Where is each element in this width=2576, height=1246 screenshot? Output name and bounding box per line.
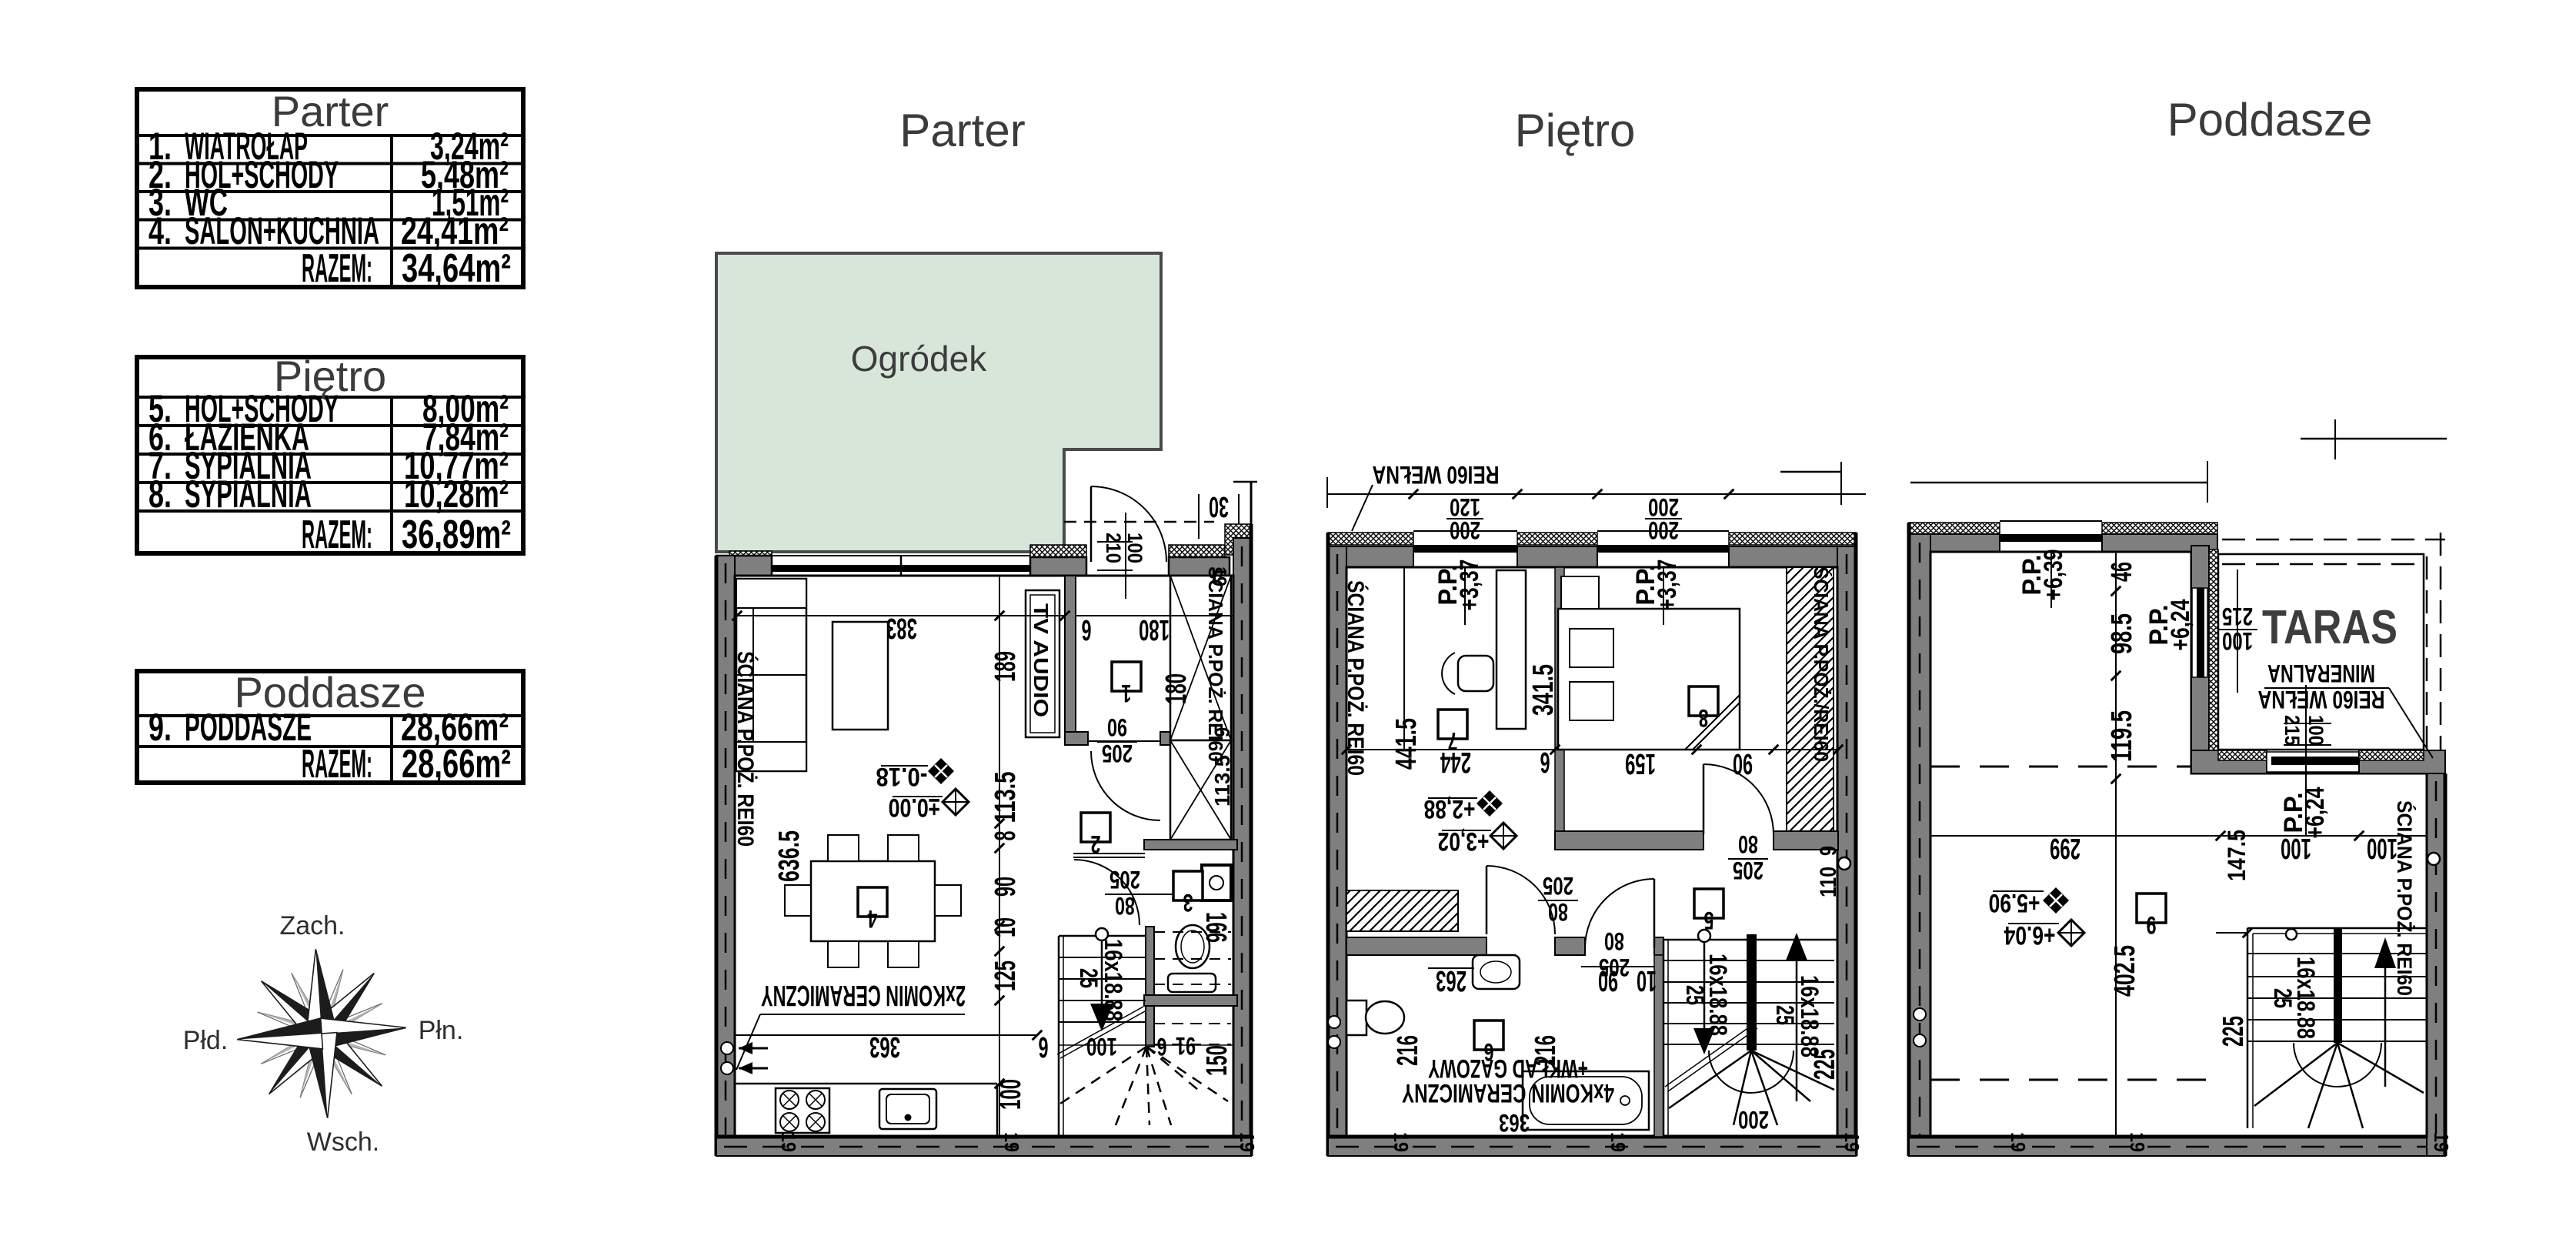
svg-text:34,64m²: 34,64m² [402,246,511,291]
svg-text:2: 2 [1091,830,1101,858]
svg-text:19: 19 [2430,1132,2453,1152]
svg-text:Zach.: Zach. [279,911,345,940]
svg-text:263: 263 [1436,964,1467,997]
svg-text:RAZEM:: RAZEM: [302,742,372,787]
svg-text:TV AUDIO: TV AUDIO [1029,603,1053,717]
svg-text:402.5: 402.5 [2109,945,2141,997]
svg-text:ŚCIANA P.POŻ. REI60: ŚCIANA P.POŻ. REI60 [2393,800,2417,996]
svg-text:1: 1 [1122,680,1132,707]
svg-text:6: 6 [1082,613,1092,646]
svg-text:100: 100 [1086,1033,1117,1061]
svg-text:RAZEM:: RAZEM: [302,513,372,557]
svg-text:216: 216 [1392,1035,1424,1066]
svg-text:Piętro: Piętro [1515,105,1636,156]
svg-text:100: 100 [1123,533,1146,563]
svg-text:80: 80 [1604,927,1624,955]
svg-text:636.5: 636.5 [773,830,806,882]
svg-text:90: 90 [1107,713,1127,741]
svg-text:159: 159 [1625,747,1656,780]
svg-text:6: 6 [1039,1031,1049,1063]
svg-text:9: 9 [1210,727,1234,737]
svg-text:244: 244 [1440,746,1471,778]
svg-text:SYPIALNIA: SYPIALNIA [185,473,312,516]
svg-text:19: 19 [1607,1132,1630,1152]
svg-text:10: 10 [1637,964,1657,997]
svg-text:10,28m²: 10,28m² [404,473,509,516]
svg-text:8.: 8. [148,473,172,516]
svg-text:363: 363 [1499,1109,1530,1137]
svg-text:225: 225 [1809,1049,1841,1080]
svg-text:Wsch.: Wsch. [307,1127,379,1157]
svg-text:341.5: 341.5 [1527,664,1560,716]
svg-text:46: 46 [2106,562,2138,582]
svg-text:ŚCIANA P.POŻ. REI60: ŚCIANA P.POŻ. REI60 [1343,580,1369,776]
svg-text:147.5: 147.5 [2223,830,2251,881]
svg-text:210: 210 [1102,533,1125,563]
svg-text:6: 6 [1540,746,1550,778]
svg-text:125: 125 [989,960,1022,991]
svg-text:19: 19 [1208,566,1231,586]
svg-text:180: 180 [1160,673,1193,704]
svg-text:Ogródek: Ogródek [851,339,987,379]
svg-text:19: 19 [1236,1132,1259,1152]
svg-text:8: 8 [1699,704,1709,732]
svg-text:25: 25 [1771,1005,1799,1025]
svg-text:215: 215 [2281,715,2304,746]
svg-text:90: 90 [1598,964,1618,997]
svg-text:100: 100 [2304,715,2327,746]
svg-text:16x18.88: 16x18.88 [1099,939,1127,1021]
svg-text:25: 25 [1681,985,1709,1005]
svg-text:2xKOMIN CERAMICZNY: 2xKOMIN CERAMICZNY [761,979,966,1011]
svg-text:9: 9 [2147,911,2157,939]
svg-text:180: 180 [1139,613,1170,646]
svg-text:225: 225 [2217,1016,2250,1047]
svg-text:98.5: 98.5 [2106,613,2138,654]
svg-text:36,89m²: 36,89m² [402,513,511,557]
svg-text:205: 205 [1102,740,1133,767]
svg-text:ŚCIANA P.POŻ./REI60: ŚCIANA P.POŻ./REI60 [1810,566,1833,762]
svg-text:REI60 WEŁNA: REI60 WEŁNA [1373,461,1500,489]
svg-text:19: 19 [1000,1132,1023,1152]
svg-text:+3,37: +3,37 [1653,560,1682,611]
svg-text:MINERALNA: MINERALNA [2267,660,2375,687]
svg-text:100: 100 [2367,832,2397,864]
svg-text:PODDASZE: PODDASZE [185,706,312,749]
svg-text:166: 166 [1200,912,1232,943]
svg-text:200: 200 [1738,1106,1769,1134]
svg-text:205: 205 [1543,872,1573,900]
svg-text:383: 383 [886,612,917,644]
svg-text:25: 25 [1075,968,1103,988]
svg-text:205: 205 [1733,857,1763,884]
svg-text:113.5: 113.5 [1210,755,1234,807]
svg-text:+6,24: +6,24 [2166,599,2195,650]
svg-text:REI60 WEŁNA: REI60 WEŁNA [2258,686,2385,713]
svg-text:441.5: 441.5 [1390,718,1423,770]
svg-text:205: 205 [1109,866,1140,894]
svg-text:113.5: 113.5 [989,772,1022,823]
svg-text:+3,37: +3,37 [1455,560,1484,611]
svg-text:+6.04: +6.04 [2004,920,2055,950]
svg-text:80: 80 [1548,898,1568,926]
svg-text:25: 25 [2269,988,2297,1008]
svg-text:Płd.: Płd. [183,1026,229,1055]
svg-text:90: 90 [1733,747,1753,780]
svg-text:119.5: 119.5 [2106,710,2138,762]
svg-text:19: 19 [2126,1132,2149,1152]
svg-text:6: 6 [1157,1033,1167,1061]
svg-text:80: 80 [1738,830,1758,858]
svg-text:19: 19 [1840,1132,1864,1152]
svg-text:28,66m²: 28,66m² [402,742,511,787]
svg-text:30: 30 [1209,490,1229,523]
svg-text:299: 299 [2050,832,2080,864]
svg-text:ŚCIANA P.POŻ. REI60: ŚCIANA P.POŻ. REI60 [732,651,759,847]
svg-text:100: 100 [995,1079,1027,1110]
svg-text:9.: 9. [148,706,172,749]
svg-text:9: 9 [1816,846,1841,856]
svg-text:+6,24: +6,24 [2301,787,2330,838]
svg-text:19: 19 [2007,1132,2030,1152]
svg-text:110: 110 [1816,867,1841,897]
svg-text:4.: 4. [148,209,172,252]
svg-text:363: 363 [869,1031,900,1063]
svg-text:19: 19 [777,1132,800,1152]
svg-text:4xKOMIN CERAMICZNY: 4xKOMIN CERAMICZNY [1402,1078,1614,1107]
svg-text:150: 150 [1201,1045,1233,1076]
svg-text:Parter: Parter [899,105,1025,156]
svg-text:TARAS: TARAS [2262,601,2397,654]
svg-text:90: 90 [989,877,1022,897]
svg-text:RAZEM:: RAZEM: [302,246,372,291]
svg-text:+6,39: +6,39 [2039,550,2068,601]
svg-text:Poddasze: Poddasze [2167,94,2373,145]
svg-text:16x18.88: 16x18.88 [1796,975,1824,1057]
svg-text:8: 8 [989,831,1022,841]
svg-text:+5.90: +5.90 [1989,888,2040,917]
svg-text:Płn.: Płn. [419,1016,464,1045]
svg-text:4: 4 [867,905,877,933]
svg-text:189: 189 [989,651,1022,682]
svg-text:3: 3 [1183,889,1193,917]
svg-text:91: 91 [1176,1032,1196,1060]
svg-text:19: 19 [1390,1132,1413,1152]
svg-text:80: 80 [1115,892,1135,920]
svg-text:100: 100 [2281,832,2311,864]
svg-text:10: 10 [989,917,1022,937]
